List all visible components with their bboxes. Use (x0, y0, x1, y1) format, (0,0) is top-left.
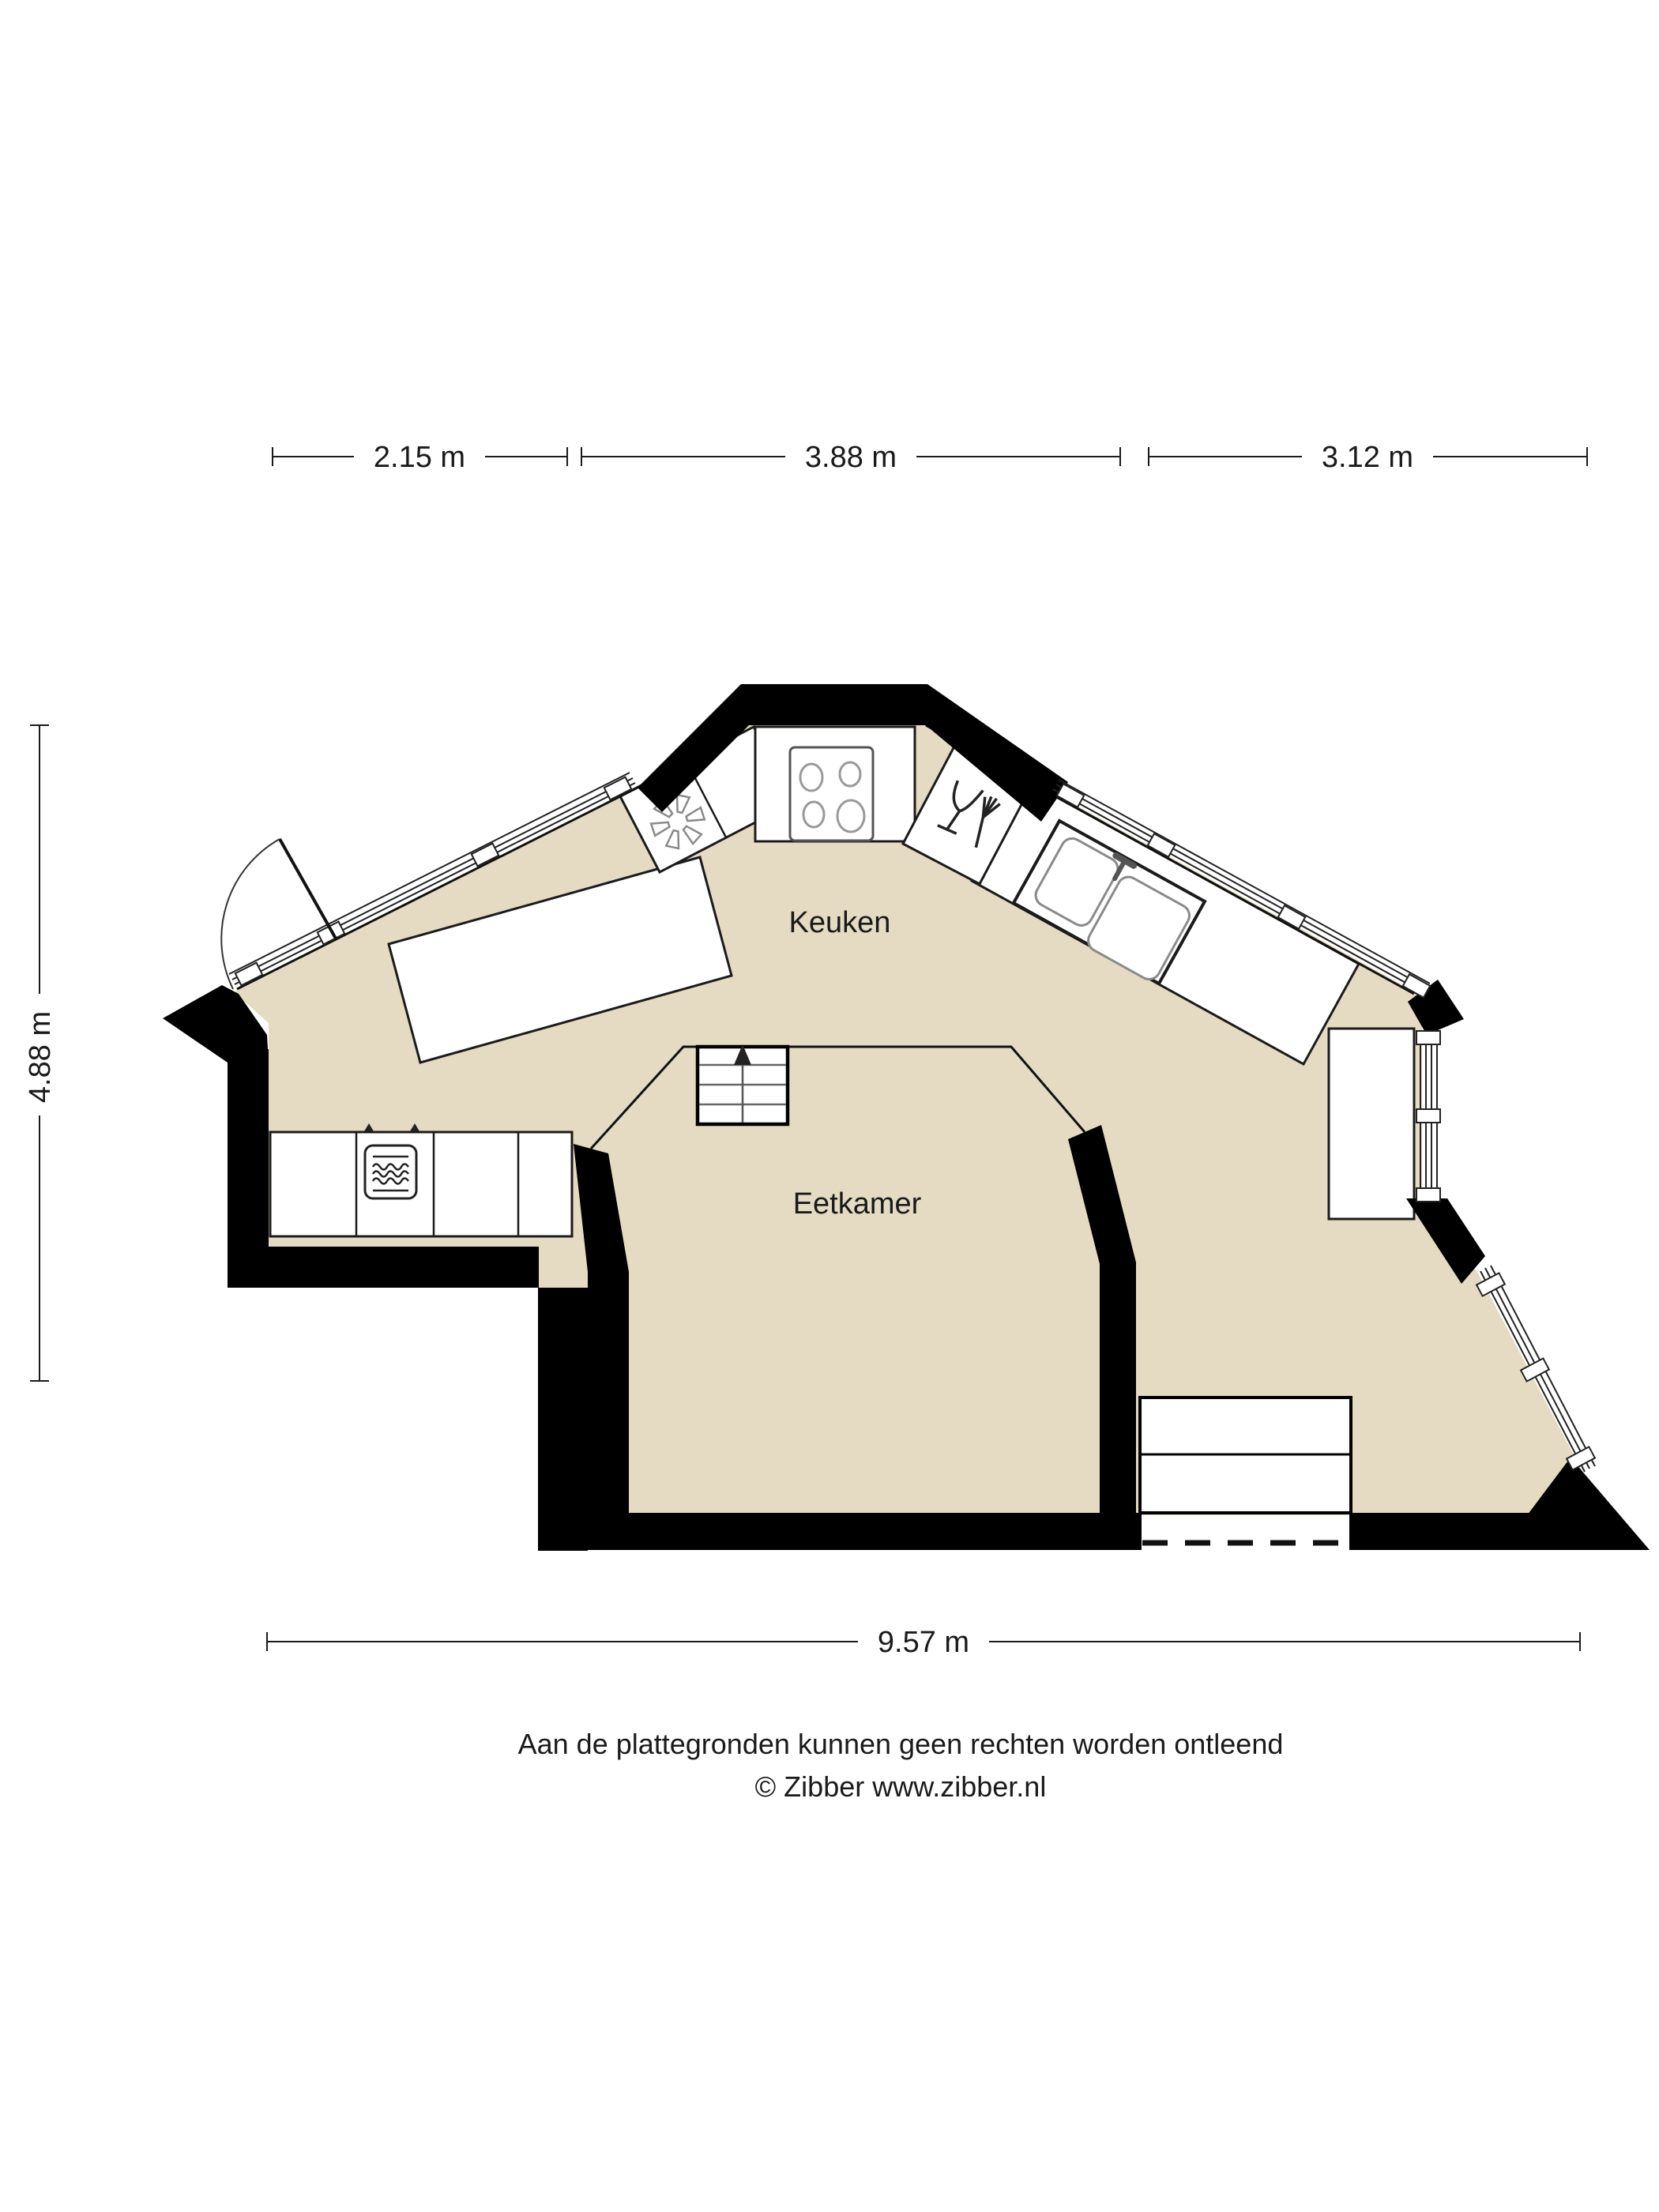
dimension-top-2: 3.88 m (581, 441, 1120, 474)
floorplan-page: Keuken Eetkamer 2.15 m 3.88 m 3.12 m (0, 0, 1659, 2212)
wall-step-connector (538, 1288, 588, 1551)
entrance-steps (1140, 1398, 1351, 1543)
room-label-keuken: Keuken (789, 906, 891, 939)
window-mullion (1416, 1109, 1440, 1123)
dimension-label: 2.15 m (374, 441, 465, 474)
wall-bottom-left-segment (538, 1513, 1142, 1550)
dimension-left: 4.88 m (24, 725, 57, 1381)
wall-kitchen-bottom (228, 1247, 539, 1288)
window-right (1416, 1031, 1440, 1202)
staircase (698, 1044, 788, 1124)
door-leaf (280, 839, 336, 939)
window-mullion (1416, 1031, 1440, 1044)
window-mullion (1416, 1188, 1440, 1202)
window-mullion (1521, 1358, 1549, 1381)
room-label-eetkamer: Eetkamer (793, 1187, 922, 1221)
dimension-bottom: 9.57 m (267, 1626, 1580, 1659)
dimension-top-3: 3.12 m (1149, 441, 1587, 474)
microwave-counter (270, 1132, 572, 1236)
dimension-top-1: 2.15 m (273, 441, 567, 474)
dimension-label: 9.57 m (878, 1626, 969, 1659)
dimension-label: 4.88 m (24, 1011, 57, 1103)
floorplan-drawing: Keuken Eetkamer 2.15 m 3.88 m 3.12 m (0, 0, 1659, 2212)
footer-disclaimer: Aan de plattegronden kunnen geen rechten… (518, 1728, 1284, 1760)
window-mullion (1477, 1273, 1505, 1296)
right-counter (1329, 1029, 1414, 1219)
dimension-label: 3.88 m (805, 441, 897, 474)
stove-icon (790, 747, 873, 841)
dimension-label: 3.12 m (1322, 441, 1413, 474)
footer-copyright: © Zibber www.zibber.nl (755, 1770, 1047, 1803)
